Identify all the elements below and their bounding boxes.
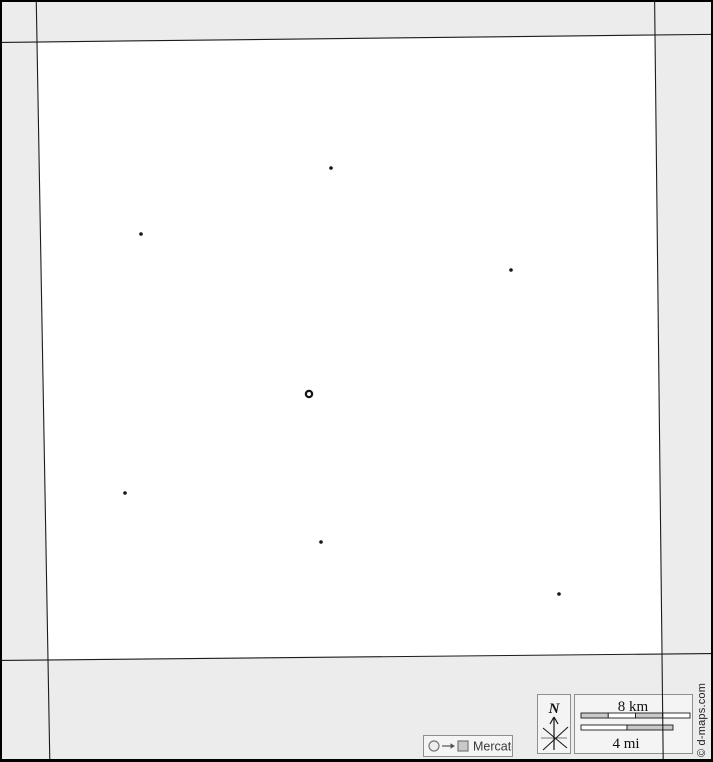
globe-circle-icon bbox=[429, 741, 439, 751]
map-frame: N 8 km 4 mi Mercator © d-maps.com bbox=[0, 0, 713, 762]
country-area bbox=[37, 35, 662, 660]
scale-mi-label: 4 mi bbox=[612, 736, 639, 752]
scale-km-segment bbox=[663, 713, 690, 718]
arrow-right-icon bbox=[451, 743, 456, 748]
scale-mi-segment bbox=[581, 725, 627, 730]
city-dot-marker bbox=[319, 540, 323, 544]
compass-panel: N bbox=[537, 694, 571, 754]
scale-km-bar bbox=[581, 713, 690, 718]
scale-km-segment bbox=[636, 713, 663, 718]
map-canvas bbox=[2, 2, 713, 762]
scale-panel: 8 km 4 mi bbox=[574, 694, 693, 754]
capital-ring-marker bbox=[306, 391, 312, 397]
projection-label: Mercator bbox=[473, 740, 512, 754]
city-dot-marker bbox=[557, 592, 561, 596]
boundary-line-top bbox=[2, 34, 713, 42]
boundary-line-bottom bbox=[2, 653, 713, 660]
compass-rose-icon: N bbox=[538, 695, 570, 753]
city-dot-marker bbox=[139, 232, 143, 236]
city-dot-marker bbox=[509, 268, 513, 272]
scale-mi-segment bbox=[627, 725, 673, 730]
copyright-credit: © d-maps.com bbox=[696, 683, 708, 757]
city-dot-marker bbox=[123, 491, 127, 495]
scale-km-segment bbox=[581, 713, 608, 718]
boundary-line-left bbox=[36, 2, 50, 762]
projection-legend-panel: Mercator bbox=[423, 735, 513, 757]
scale-km-segment bbox=[608, 713, 635, 718]
scale-mi-bar bbox=[581, 725, 673, 730]
boundary-line-right bbox=[655, 2, 664, 762]
scale-bars: 8 km 4 mi bbox=[575, 695, 692, 753]
projection-legend: Mercator bbox=[424, 736, 512, 756]
compass-north-label: N bbox=[548, 701, 561, 717]
flat-map-square-icon bbox=[458, 741, 468, 751]
city-markers bbox=[123, 166, 561, 596]
city-dot-marker bbox=[329, 166, 333, 170]
